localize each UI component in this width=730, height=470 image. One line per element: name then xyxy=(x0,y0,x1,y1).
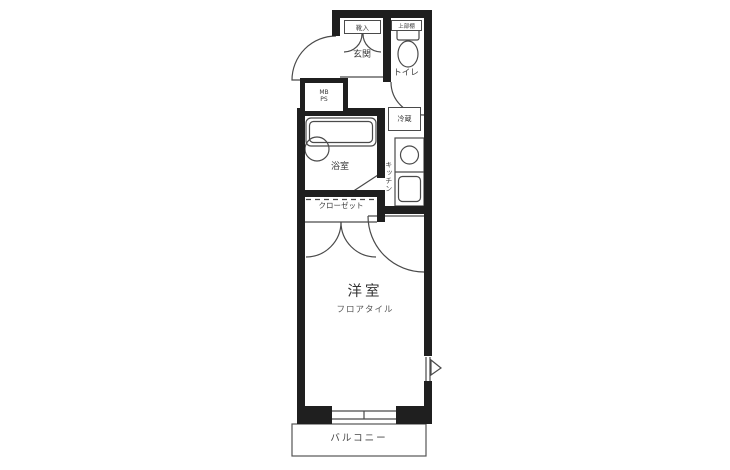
closet-label: クローゼット xyxy=(305,202,377,210)
meter-box: MB PS xyxy=(300,78,348,116)
entrance-door-arc xyxy=(292,36,336,80)
wall-window-right-stub xyxy=(396,406,432,424)
room-label: 洋室 xyxy=(325,285,405,301)
entrance-label: 玄関 xyxy=(340,51,384,61)
toilet-icon xyxy=(397,27,419,67)
room-door-arc xyxy=(368,216,424,272)
washbasin-icon xyxy=(305,137,329,161)
fixture-drawings xyxy=(0,0,730,470)
wall-left-long xyxy=(297,108,305,424)
kitchen-burner-icon xyxy=(401,146,419,164)
kitchen-unit-icon xyxy=(395,138,424,206)
sliding-window xyxy=(332,411,396,419)
bathtub-icon xyxy=(306,118,376,146)
toilet-label: トイレ xyxy=(390,69,422,78)
balcony-label: バルコニー xyxy=(309,434,409,444)
shoe-cabinet-label: 靴入 xyxy=(356,22,369,32)
closet-doors xyxy=(306,222,376,257)
casement-window xyxy=(426,357,441,381)
wall-window-left-stub xyxy=(297,406,332,424)
wall-kitchen-bottom xyxy=(385,206,432,214)
refrigerator-label: 冷蔵 xyxy=(398,114,412,124)
upper-shelf-box: 上部棚 xyxy=(391,20,422,31)
wall-entrance-left-upper xyxy=(332,10,340,36)
room-floor-label: フロアタイル xyxy=(325,306,405,315)
shoe-cabinet-box: 靴入 xyxy=(344,20,381,34)
floor-plan: MB PS 靴入 上部棚 冷蔵 玄関 トイレ 浴室 クローゼット キッチン 洋室… xyxy=(0,0,730,470)
kitchen-sink-icon xyxy=(399,177,421,202)
wall-right-upper xyxy=(424,10,432,356)
upper-shelf-label: 上部棚 xyxy=(398,22,415,30)
bathroom-label: 浴室 xyxy=(316,163,364,173)
kitchen-label: キッチン xyxy=(384,148,392,206)
refrigerator-box: 冷蔵 xyxy=(388,107,421,131)
wall-bathroom-bottom xyxy=(297,190,385,197)
pipe-space-label: PS xyxy=(320,97,327,104)
wall-top xyxy=(332,10,432,18)
